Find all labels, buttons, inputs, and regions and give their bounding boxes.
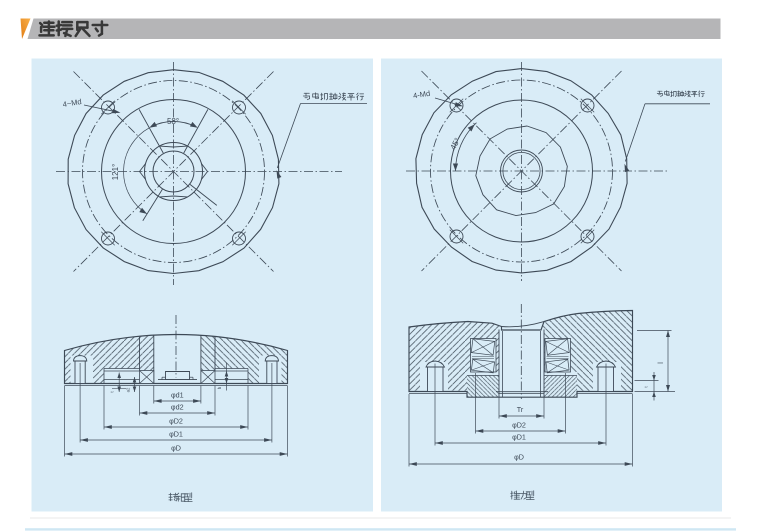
svg-text:φd2: φd2 <box>171 403 184 412</box>
svg-text:a2: a2 <box>126 387 131 392</box>
svg-text:φD2: φD2 <box>512 421 526 430</box>
svg-text:Tr: Tr <box>517 405 524 414</box>
svg-text:58°: 58° <box>167 117 179 126</box>
svg-text:φD2: φD2 <box>169 417 183 426</box>
svg-text:φD1: φD1 <box>512 433 526 442</box>
svg-text:121°: 121° <box>111 164 120 181</box>
svg-text:φD: φD <box>171 444 181 453</box>
svg-text:φd1: φd1 <box>171 391 184 400</box>
svg-text:φD1: φD1 <box>169 430 183 439</box>
svg-text:φD: φD <box>514 453 524 462</box>
